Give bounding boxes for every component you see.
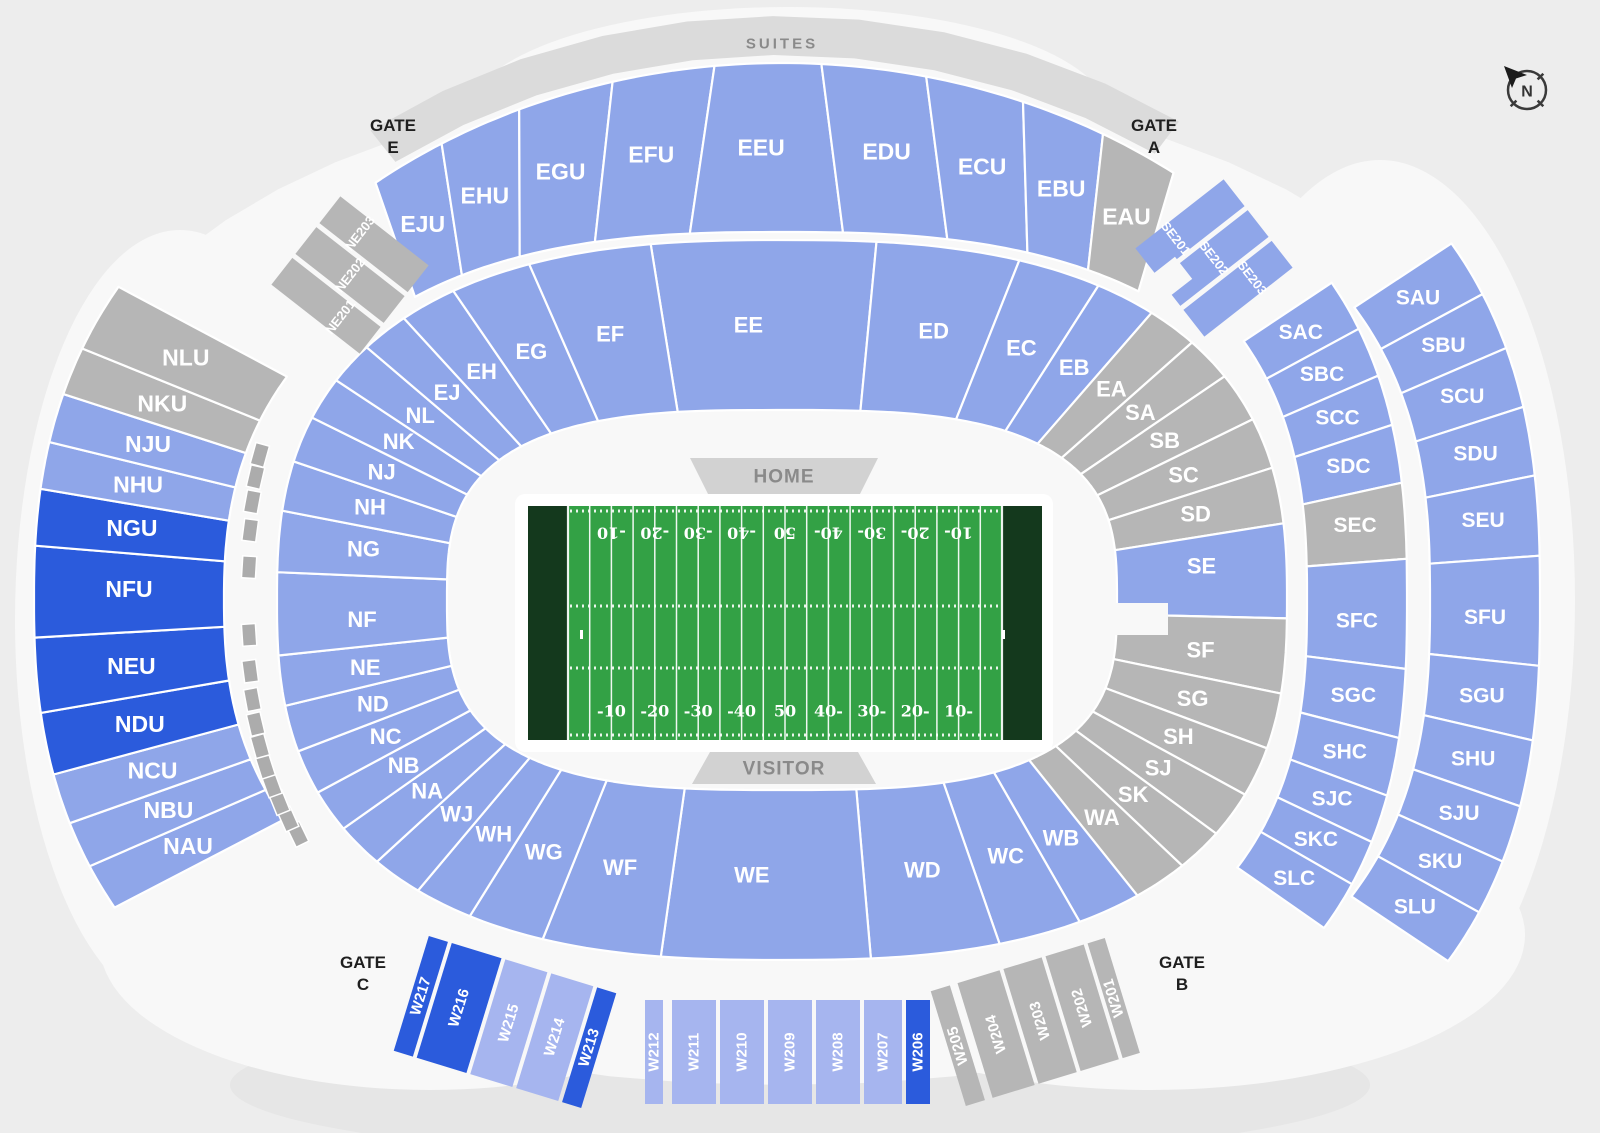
- mini-suite-box[interactable]: [242, 518, 259, 542]
- compass-n: N: [1521, 84, 1533, 101]
- mini-suite-box[interactable]: [241, 556, 256, 579]
- section-EEU[interactable]: EEU: [690, 63, 843, 234]
- section-W209[interactable]: W209: [768, 1000, 812, 1104]
- mini-suite-box[interactable]: [241, 623, 256, 646]
- stadium-map: EEEDECEBEASASBSCSDSESFSGSHSJSKWAWBWCWDWE…: [0, 0, 1600, 1133]
- section-W208[interactable]: W208: [816, 1000, 860, 1104]
- tunnel-notch: [1050, 603, 1168, 635]
- north-arrow-icon: [1504, 66, 1527, 88]
- tunnel-notch-step: [1050, 635, 1108, 653]
- section-SFC[interactable]: SFC: [1306, 559, 1407, 669]
- w-block-middle: W212W211W210W209W208W207W206: [645, 1000, 930, 1104]
- mini-suite-box[interactable]: [243, 687, 261, 711]
- section-W211[interactable]: W211: [672, 1000, 716, 1104]
- home-sideline-tag: [690, 458, 878, 494]
- end-zone-left: [528, 506, 568, 740]
- section-W207[interactable]: W207: [864, 1000, 902, 1104]
- section-WE[interactable]: WE: [661, 788, 871, 960]
- section-W212[interactable]: W212: [645, 1000, 663, 1104]
- compass: N: [1504, 66, 1546, 109]
- mini-suite-box[interactable]: [243, 490, 261, 514]
- mini-suite-box[interactable]: [242, 659, 259, 683]
- end-zone-right: [1002, 506, 1042, 740]
- section-W206[interactable]: W206: [906, 1000, 930, 1104]
- visitor-sideline-tag: [692, 752, 876, 784]
- section-W210[interactable]: W210: [720, 1000, 764, 1104]
- football-field: HOME VISITOR -10-10-20-20-30-30-40-40505…: [515, 458, 1053, 784]
- stadium-seat-map-page: EEEDECEBEASASBSCSDSESFSGSHSJSKWAWBWCWDWE…: [0, 0, 1600, 1133]
- section-EE[interactable]: EE: [651, 240, 877, 412]
- section-SFU[interactable]: SFU: [1429, 556, 1540, 666]
- yard-lines: [568, 506, 1002, 740]
